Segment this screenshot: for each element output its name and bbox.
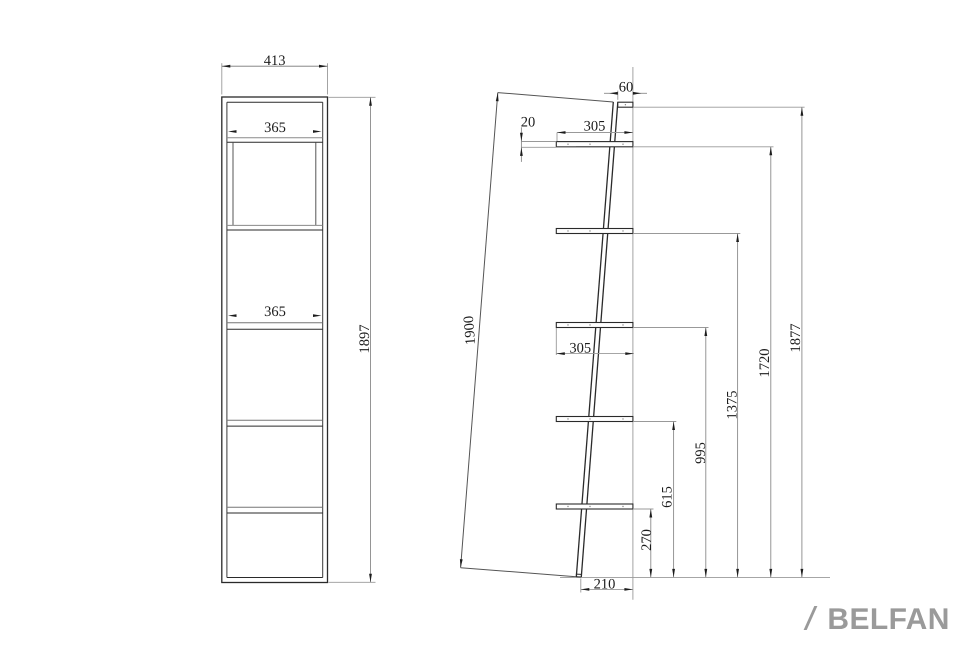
svg-text:1897: 1897: [357, 325, 373, 354]
svg-text:60: 60: [619, 79, 634, 95]
svg-text:365: 365: [264, 120, 286, 136]
svg-text:20: 20: [521, 115, 536, 131]
svg-text:305: 305: [569, 341, 591, 357]
svg-text:1900: 1900: [461, 315, 479, 345]
svg-text:1877: 1877: [788, 324, 804, 353]
svg-text:270: 270: [639, 529, 655, 551]
svg-text:1375: 1375: [724, 391, 740, 420]
svg-text:210: 210: [594, 577, 616, 593]
svg-text:BELFAN: BELFAN: [827, 603, 949, 636]
svg-text:1720: 1720: [757, 349, 773, 378]
svg-text:995: 995: [693, 442, 709, 464]
svg-text:413: 413: [264, 53, 286, 69]
svg-text:365: 365: [264, 304, 286, 320]
svg-text:305: 305: [584, 119, 606, 135]
svg-text:615: 615: [660, 486, 676, 508]
